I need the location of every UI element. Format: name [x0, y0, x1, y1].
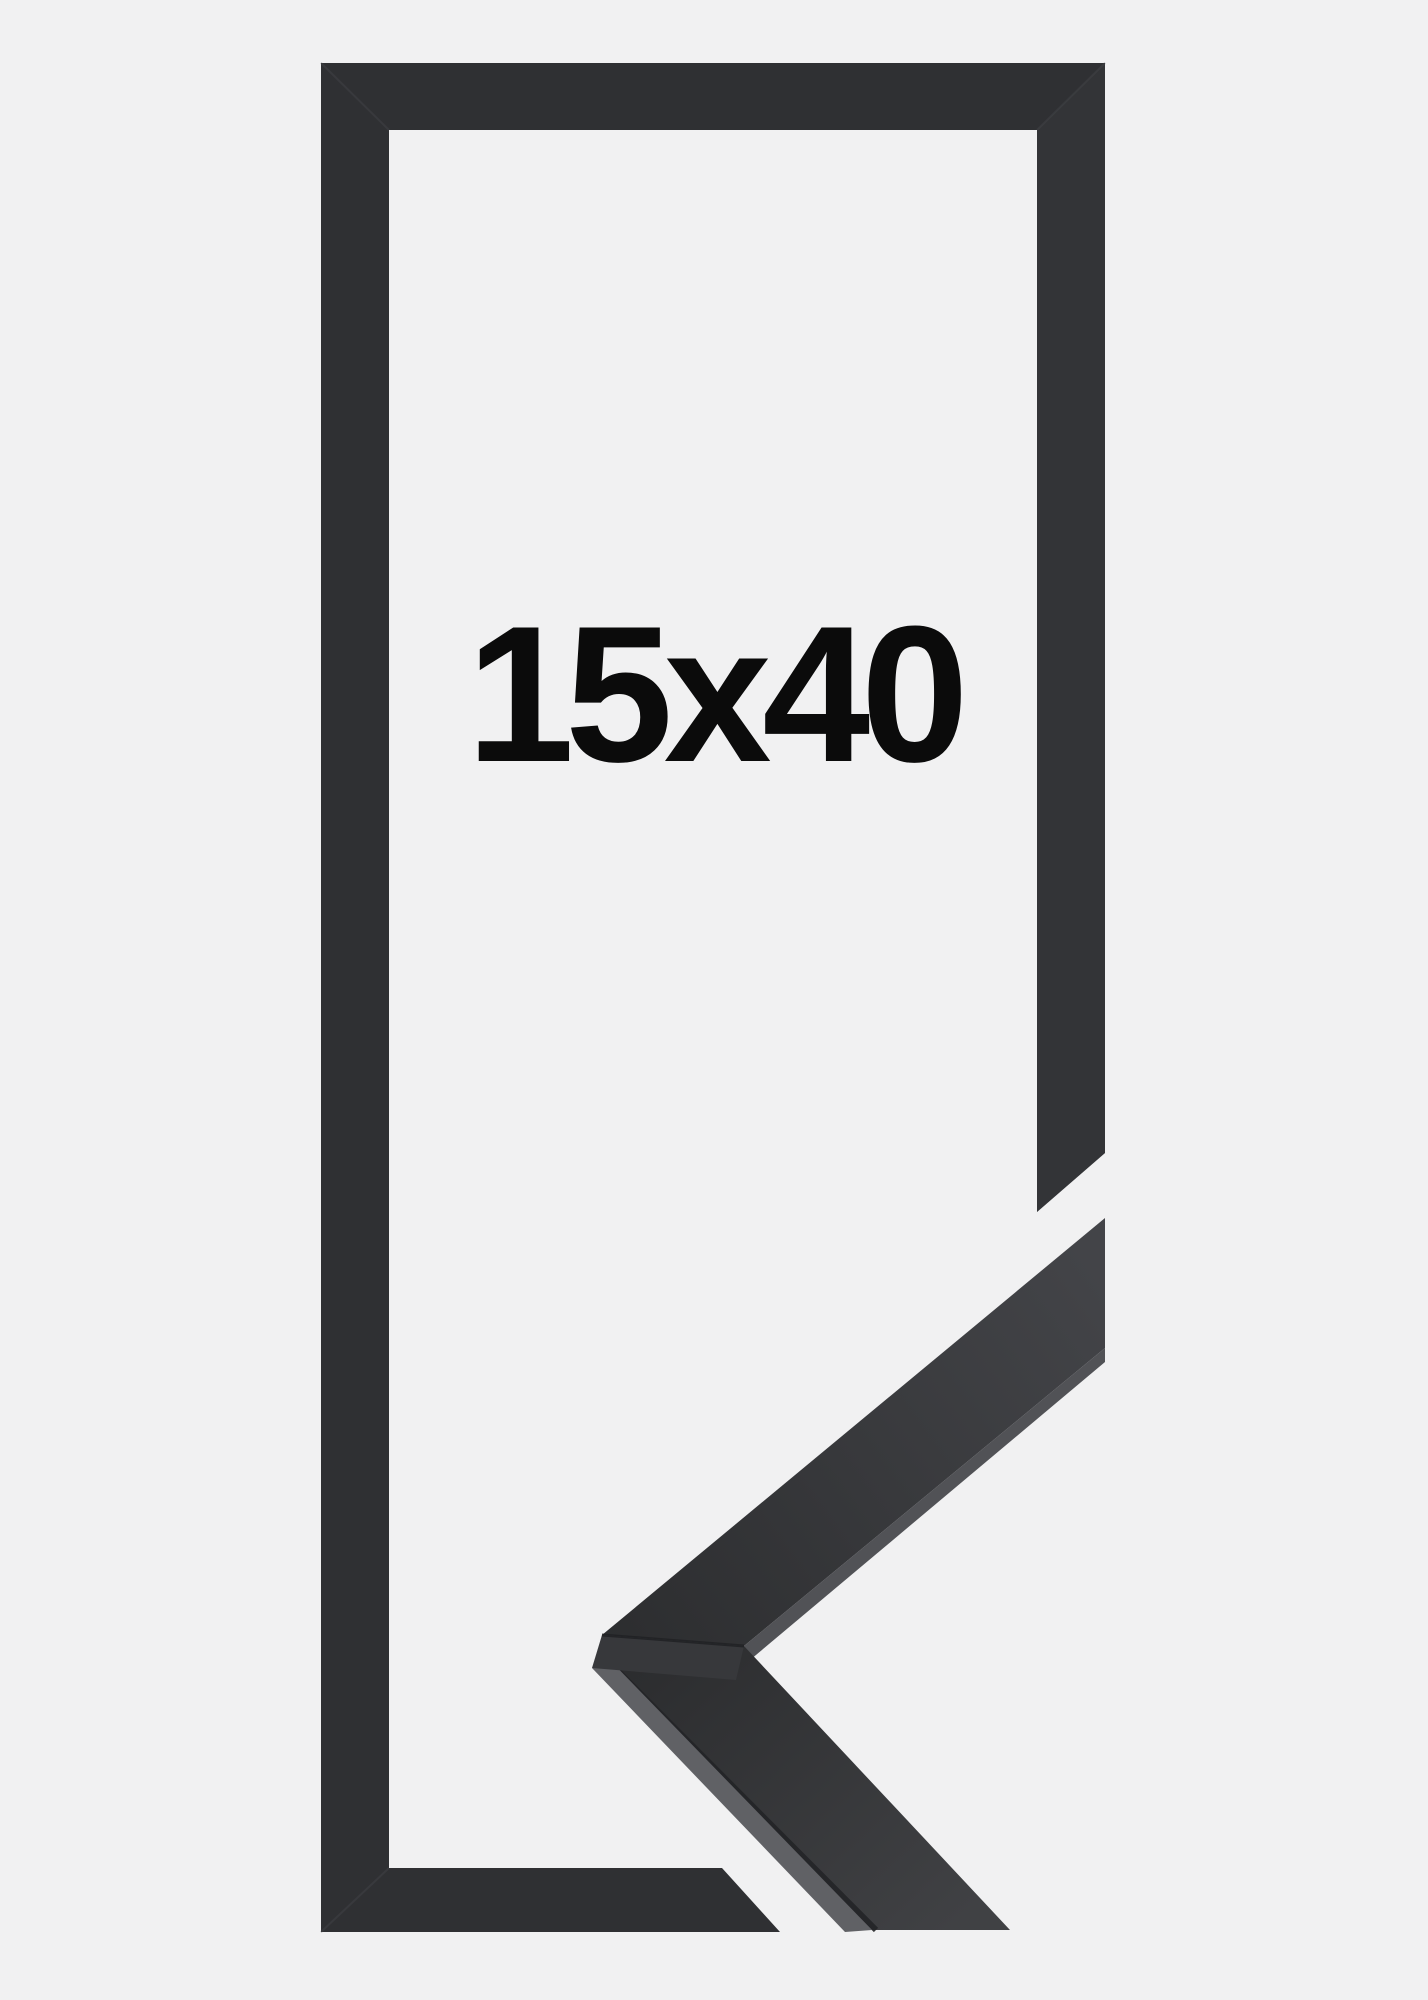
frame-right-bar — [1037, 63, 1105, 1212]
corner-profile-sample — [592, 1218, 1105, 1932]
frame-size-label: 15x40 — [389, 552, 1037, 838]
corner-sample-upper-leg — [602, 1218, 1105, 1646]
picture-frame-graphic — [0, 0, 1428, 2000]
product-image: 15x40 — [0, 0, 1428, 2000]
